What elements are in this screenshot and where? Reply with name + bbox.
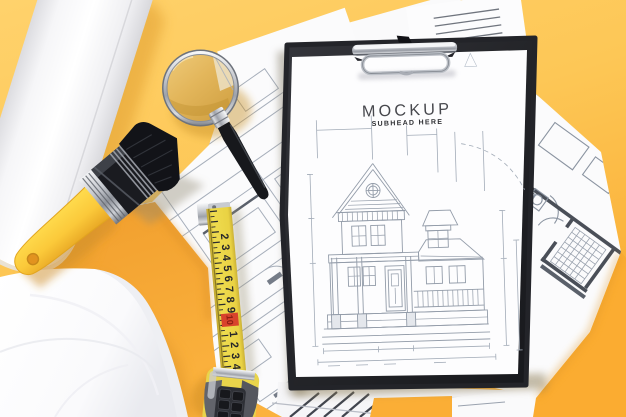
svg-text:2: 2: [218, 233, 231, 240]
svg-text:8: 8: [223, 296, 236, 303]
svg-text:2: 2: [228, 341, 241, 348]
svg-text:1: 1: [227, 330, 240, 337]
svg-text:6: 6: [222, 275, 235, 282]
svg-text:10: 10: [224, 314, 235, 325]
svg-text:3: 3: [219, 244, 232, 251]
svg-text:MOCKUP: MOCKUP: [362, 100, 453, 121]
svg-text:3: 3: [229, 352, 242, 359]
svg-text:5: 5: [221, 265, 234, 272]
svg-text:7: 7: [223, 286, 236, 293]
svg-text:9: 9: [224, 307, 237, 314]
